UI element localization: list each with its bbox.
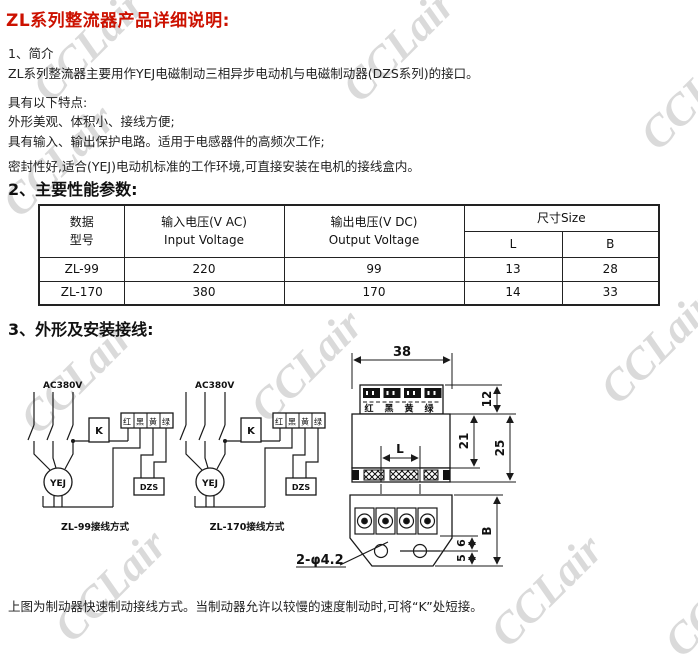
features-lead: 具有以下特点:	[8, 92, 87, 111]
table-header-input: 输入电压(V AC) Input Voltage	[124, 205, 284, 257]
dim-width-label: 38	[393, 345, 411, 360]
cell-output: 170	[284, 281, 464, 305]
junction-dot	[71, 439, 75, 443]
strip-label-yellow: 黄	[404, 403, 413, 415]
table-header-L: L	[464, 231, 562, 257]
table-header-output: 输出电压(V DC) Output Voltage	[284, 205, 464, 257]
performance-table: 数据 型号 输入电压(V AC) Input Voltage 输出电压(V DC…	[38, 204, 660, 306]
header-model-line1: 数据	[40, 213, 124, 232]
intro-paragraph: ZL系列整流器主要用作YEJ电磁制动三相异步电动机与电磁制动器(DZS系列)的接…	[8, 63, 479, 82]
section-3-heading: 3、外形及安装接线:	[8, 316, 154, 340]
motor-label: YEJ	[49, 479, 66, 489]
table-header-B: B	[562, 231, 659, 257]
section-2-heading: 2、主要性能参数:	[8, 176, 138, 200]
table-row: ZL-170 380 170 14 33	[39, 281, 659, 305]
cell-B: 28	[562, 257, 659, 281]
feature-line-1: 外形美观、体积小、接线方便;	[8, 111, 175, 130]
junction-dot	[223, 439, 227, 443]
header-output-line2: Output Voltage	[285, 231, 464, 250]
terminal-label-red: 红	[123, 417, 131, 427]
watermark: CCLair	[630, 27, 698, 160]
cell-L: 13	[464, 257, 562, 281]
diagram-caption-zl170: ZL-170接线方式	[210, 521, 285, 533]
header-input-line1: 输入电压(V AC)	[125, 213, 284, 232]
dim-L-label: L	[396, 442, 404, 456]
header-model-line2: 型号	[40, 231, 124, 250]
cell-input: 380	[124, 281, 284, 305]
cell-B: 33	[562, 281, 659, 305]
motor-label: YEJ	[201, 479, 218, 489]
table-header-size: 尺寸Size	[464, 205, 659, 231]
watermark: CCLair	[332, 0, 465, 112]
intro-heading: 1、简介	[8, 43, 53, 62]
ac-voltage-label: AC380V	[43, 381, 82, 391]
cell-output: 99	[284, 257, 464, 281]
watermark: CCLair	[654, 534, 698, 667]
table-row: ZL-99 220 99 13 28	[39, 257, 659, 281]
dimension-drawing: 38 红 黑 黄 绿 L	[288, 345, 540, 585]
footer-note: 上图为制动器快速制动接线方式。当制动器允许以较慢的速度制动时,可将“K”处短接。	[8, 596, 483, 615]
rail-hatch	[352, 470, 450, 480]
feature-line-2: 具有输入、输出保护电路。适用于电感器件的高频次工作;	[8, 131, 325, 150]
ac-voltage-label: AC380V	[195, 381, 234, 391]
feature-line-3: 密封性好,适合(YEJ)电动机标准的工作环境,可直接安装在电机的接线盒内。	[8, 156, 420, 175]
holes-dim-label: 2-φ4.2	[296, 553, 344, 568]
strip-label-green: 绿	[424, 403, 434, 415]
dim-B-label: B	[480, 526, 494, 535]
zl99-wiring-diagram: K 红 黑 黄 绿 YEJ DZS AC380V ZL-99接线方式	[15, 378, 185, 538]
strip-label-red: 红	[364, 403, 373, 415]
cell-model: ZL-170	[39, 281, 124, 305]
terminal-label-black: 黑	[136, 418, 144, 427]
brake-label: DZS	[140, 483, 158, 492]
body-outline	[352, 414, 450, 468]
header-output-line1: 输出电压(V DC)	[285, 213, 464, 232]
header-input-line2: Input Voltage	[125, 231, 284, 250]
dim-strip-label: 12	[480, 391, 494, 408]
k-switch-label: K	[95, 426, 104, 437]
cell-L: 14	[464, 281, 562, 305]
dim-inner-label: 21	[457, 433, 471, 450]
dim-5-label: 5	[455, 554, 468, 562]
diagram-caption-zl99: ZL-99接线方式	[61, 521, 130, 533]
dim-6-label: 6	[455, 539, 468, 547]
cell-model: ZL-99	[39, 257, 124, 281]
table-header-model: 数据 型号	[39, 205, 124, 257]
page-title: ZL系列整流器产品详细说明:	[6, 6, 230, 31]
terminal-label-yellow: 黄	[149, 417, 157, 427]
cell-input: 220	[124, 257, 284, 281]
dim-body-label: 25	[493, 440, 507, 457]
terminal-label-red: 红	[275, 417, 283, 427]
k-switch-label: K	[247, 426, 256, 437]
watermark: CCLair	[44, 519, 177, 652]
strip-label-black: 黑	[384, 404, 393, 415]
